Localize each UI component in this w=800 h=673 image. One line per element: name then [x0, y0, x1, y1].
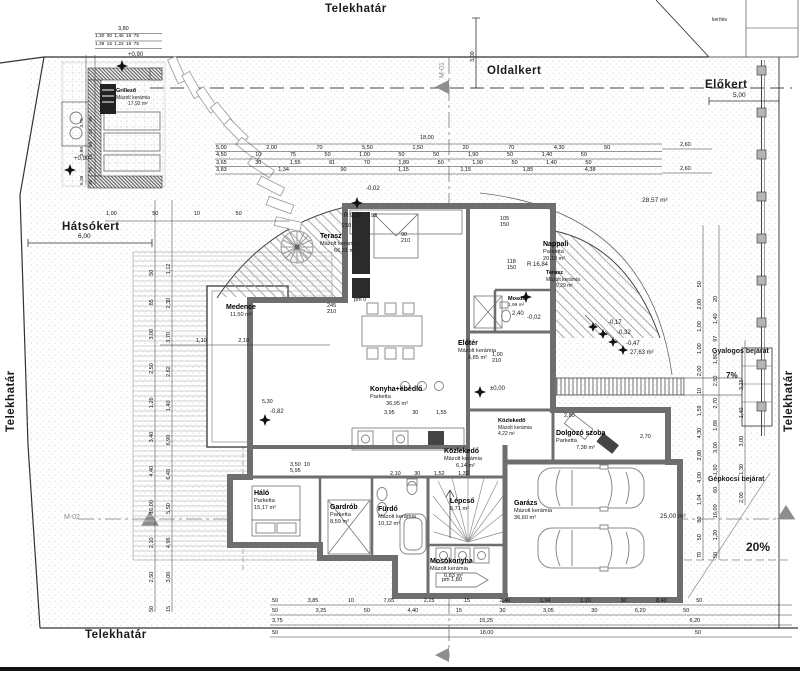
side-garden-area: 28,57 m² — [642, 197, 668, 205]
tag-parapet: pm 1,80 — [442, 577, 462, 583]
section-m01-label: M-01 — [439, 62, 448, 78]
tag-k210: 210 — [342, 223, 351, 229]
level-step-2: -0,17 — [608, 320, 622, 328]
dim-bottom-row2: 50 3,25 50 4,40 15 30 3,05 30 6,20 50 — [272, 608, 790, 614]
section-m02-label: M-02 — [64, 514, 80, 523]
boundary-label-top: Telekhatár — [325, 2, 387, 16]
level-step-3: -0,32 — [617, 330, 631, 338]
room-kozlekedo-2: Közlekedő Mázolt kerámia 4,22 m² — [498, 418, 532, 437]
driveway-slope: 20% — [746, 540, 770, 555]
room-medence: Medence 11,50 m² — [226, 304, 256, 319]
room-kozlekedo-1: Közlekedő Mázolt kerámia 6,14 m² — [444, 448, 482, 470]
room-terasz-1: Terasz Mázolt kerámia 66,31 m² — [320, 233, 358, 255]
dim-bath-row: 2,10 30 1,52 1,32 — [390, 471, 495, 477]
tag-terrace-door: 245 210 — [327, 303, 336, 315]
car-1 — [538, 465, 644, 511]
garden-front-label: Előkert — [705, 78, 748, 92]
dim-top-row3: 4,50 10 75 50 1,00 50 50 1,90 50 1,40 50 — [216, 152, 662, 158]
room-lepcso: Lépcső 6,71 m² — [450, 498, 475, 513]
pedestrian-slope: 7% — [726, 371, 738, 381]
dim-right-col3: 2,00 1,30 3,00 1,40 3,25 — [739, 343, 745, 503]
boundary-label-right: Telekhatár — [782, 370, 796, 432]
radius-2: R 16,84 — [527, 262, 548, 270]
dim-study-w: 2,80 — [564, 413, 575, 419]
tag-door-1: 1,00 210 — [492, 352, 503, 364]
dim-deck-w: 5,30 — [262, 399, 273, 405]
boundary-label-left: Telekhatár — [4, 370, 18, 432]
garden-side-dim: 3,00 — [470, 51, 476, 62]
garden-side-label: Oldalkert — [487, 64, 541, 78]
dim-grill-left1: 5,39 3,80 3,75 — [80, 60, 85, 185]
room-furdo: Fürdő Mázolt kerámia 10,12 m² — [378, 506, 416, 528]
tag-parapet-0: pm 0 — [354, 297, 366, 303]
garden-front-dim: 5,00 — [733, 92, 746, 99]
room-halo: Háló Parketta 15,17 m² — [254, 490, 276, 512]
level-lintel: 2,40 — [512, 311, 524, 319]
tag-k93: 93 — [371, 213, 377, 219]
dim-grill-row2: 1,30 30 1,45 15 75 — [95, 34, 161, 39]
dim-top-total: 18,00 — [420, 135, 434, 141]
dim-right-col2: 50 1,20 16,00 60 1,50 3,00 1,89 2,70 2,5… — [713, 228, 719, 558]
room-konyha: Konyha+ébédlő Parketta 36,95 m² — [370, 386, 422, 408]
driveway-area: 25,00 m² — [660, 513, 686, 521]
level-grill-a: +0,90 — [128, 52, 143, 60]
dim-pool-row: 1,10 2,10 — [196, 338, 286, 344]
dim-top-row5: 3,83 1,34 90 1,15 1,15 1,85 4,38 — [216, 167, 662, 173]
dim-back-row: 1,00 50 10 50 — [106, 211, 286, 217]
dim-top-row4: 3,65 30 1,55 81 70 1,89 50 1,90 50 1,40 … — [216, 160, 662, 166]
level-step-1: -0,02 — [527, 315, 541, 323]
tree-symbol — [281, 231, 313, 263]
dim-halo-rows: 3,50 10 5,95 — [290, 462, 310, 474]
car-2 — [538, 525, 644, 571]
dim-top-right-1: 2,60 — [680, 142, 691, 148]
tag-window-3: 90 210 — [401, 232, 410, 244]
radius-1: R 9,55 — [344, 213, 362, 221]
dim-kitchen-row: 3,95 30 1,55 — [384, 410, 476, 416]
level-top-step: -0,02 — [366, 186, 380, 194]
room-grillezo: Grillező Mázolt kerámia 17,92 m² — [116, 88, 150, 107]
tag-window-2: 118 150 — [507, 259, 516, 271]
dim-bottom-row3: 3,75 15,25 6,20 — [272, 618, 790, 624]
room-garazs: Garázs Mázolt kerámia 36,60 m² — [514, 500, 552, 522]
dim-right-col1: 70 50 80 1,04 4,00 3,80 4,30 1,59 10 2,0… — [697, 228, 703, 558]
dim-grill-total: 3,80 — [118, 26, 129, 32]
room-gardrob: Gardrób Parketta 8,59 m² — [330, 504, 358, 526]
grill-building — [62, 62, 165, 188]
room-dolgozo: Dolgozó szoba Parketta 7,38 m² — [556, 430, 605, 452]
level-step-4: -0,47 — [626, 341, 640, 349]
level-entry: ±0,00 — [490, 386, 505, 394]
court-area: 27,63 m² — [630, 350, 654, 358]
dim-study-h: 2,70 — [640, 434, 651, 440]
room-terasz-2: Terasz Mázolt kerámia 9,29 m² — [546, 270, 580, 289]
room-eloter: Előtér Mázolt kerámia 6,85 m² — [458, 340, 496, 362]
fence-note: kerítés — [712, 17, 727, 23]
room-nappali: Nappali Parketta 20,10 m² — [543, 241, 568, 263]
dim-top-row2: 5,00 2,00 70 5,50 1,50 20 70 4,30 50 — [216, 145, 662, 151]
tag-window-1: 105 150 — [500, 216, 509, 228]
floor-plan-canvas: Telekhatár Telekhatár Telekhatár Telekha… — [0, 0, 800, 673]
room-mosdo: Mosdó 1,98 m² — [508, 296, 526, 308]
dim-top-right-2: 2,60 — [680, 166, 691, 172]
dim-grill-left2: 30 75 15 84 15 65 — [89, 60, 94, 185]
dim-left-col1: 50 2,50 2,10 16,00 4,40 3,40 1,26 2,50 3… — [149, 202, 155, 612]
boundary-label-bottom: Telekhatár — [85, 628, 147, 642]
dim-left-col2: 15 3,00 4,96 5,50 6,40 6,90 1,40 2,62 3,… — [166, 202, 172, 612]
dim-bottom-row1: 50 3,85 10 7,65 2,15 15 2,40 1,94 1,20 3… — [272, 598, 790, 604]
level-deck: -0,82 — [270, 409, 284, 417]
garden-back-dim: 6,00 — [78, 233, 91, 240]
dim-grill-row3: 1,38 15 1,22 15 75 — [95, 42, 161, 47]
dim-bottom-row4: 50 18,00 50 — [272, 630, 790, 636]
